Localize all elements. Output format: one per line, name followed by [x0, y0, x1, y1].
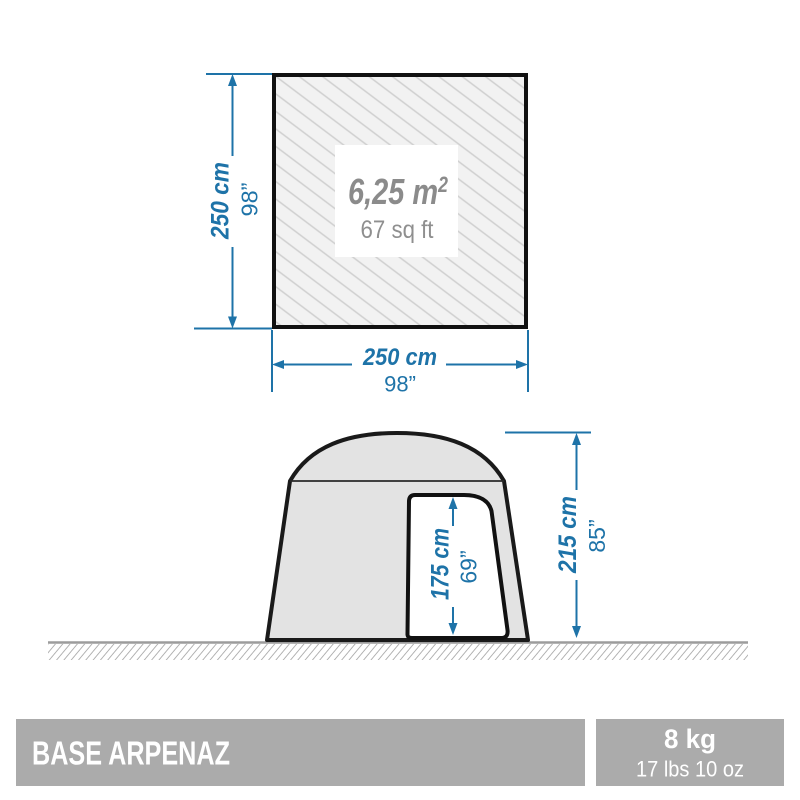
svg-text:8 kg: 8 kg — [664, 724, 716, 754]
svg-text:175 cm: 175 cm — [427, 528, 455, 600]
svg-text:BASE ARPENAZ: BASE ARPENAZ — [32, 735, 230, 772]
svg-text:17 lbs 10 oz: 17 lbs 10 oz — [636, 757, 744, 782]
svg-text:69”: 69” — [456, 550, 482, 583]
svg-text:98”: 98” — [237, 183, 263, 217]
svg-text:6,25 m2: 6,25 m2 — [348, 171, 449, 212]
svg-text:67 sq ft: 67 sq ft — [361, 216, 434, 244]
svg-text:98”: 98” — [384, 372, 416, 397]
svg-text:85”: 85” — [584, 519, 610, 552]
svg-text:215 cm: 215 cm — [554, 496, 582, 574]
svg-text:250 cm: 250 cm — [207, 162, 235, 240]
svg-text:250 cm: 250 cm — [362, 344, 437, 371]
